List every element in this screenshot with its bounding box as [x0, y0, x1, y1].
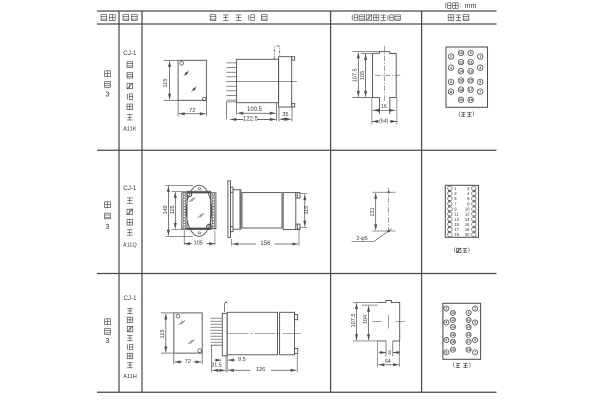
svg-text:7: 7	[479, 90, 481, 94]
svg-text:12: 12	[451, 318, 455, 322]
svg-text:(: (	[454, 248, 456, 254]
svg-text:3: 3	[474, 321, 476, 325]
svg-text:115: 115	[160, 329, 166, 338]
svg-text:4: 4	[446, 321, 448, 325]
svg-text:8: 8	[446, 351, 448, 355]
svg-text:2: 2	[450, 55, 452, 59]
svg-text::: :	[460, 3, 462, 9]
svg-text:(: (	[453, 363, 455, 369]
svg-text:64: 64	[385, 359, 391, 365]
svg-text:19: 19	[454, 232, 459, 237]
svg-text:15: 15	[469, 79, 473, 83]
svg-text:(: (	[458, 112, 460, 118]
svg-text:105: 105	[360, 71, 366, 80]
svg-text:131: 131	[370, 207, 376, 216]
svg-text:A11Q: A11Q	[123, 242, 138, 248]
svg-text:9.5: 9.5	[238, 357, 246, 363]
svg-text:5: 5	[474, 338, 476, 342]
svg-text:156: 156	[260, 241, 271, 247]
svg-text:11: 11	[469, 60, 473, 64]
svg-text:13: 13	[469, 69, 473, 73]
svg-text:17: 17	[469, 88, 473, 92]
svg-text:CJ-1: CJ-1	[123, 295, 137, 302]
svg-text:16: 16	[387, 350, 392, 355]
svg-text:3: 3	[106, 224, 110, 231]
svg-text:16: 16	[451, 333, 455, 337]
svg-text:6: 6	[450, 80, 452, 84]
svg-text:19: 19	[467, 348, 471, 352]
svg-text:12: 12	[459, 60, 463, 64]
svg-text:9: 9	[470, 51, 472, 55]
svg-text:18: 18	[459, 88, 463, 92]
svg-text:7: 7	[474, 351, 476, 355]
svg-text:A11H: A11H	[123, 374, 137, 380]
svg-text:9: 9	[468, 311, 470, 315]
svg-text:35: 35	[282, 112, 288, 118]
svg-text:107.5: 107.5	[353, 68, 359, 82]
svg-text:20: 20	[451, 348, 455, 352]
svg-text:mm: mm	[465, 3, 477, 10]
svg-text:19: 19	[469, 98, 473, 102]
svg-text:125: 125	[170, 205, 176, 214]
svg-text:10: 10	[459, 51, 463, 55]
svg-text:2-φ5: 2-φ5	[356, 236, 367, 242]
svg-text:122.5: 122.5	[243, 117, 259, 123]
svg-text:100.5: 100.5	[247, 107, 263, 113]
svg-text:16: 16	[381, 104, 387, 110]
svg-text:20: 20	[465, 232, 470, 237]
svg-text:105: 105	[193, 241, 203, 247]
svg-text:): )	[468, 248, 470, 254]
svg-text:149: 149	[163, 205, 169, 214]
svg-text:4: 4	[450, 66, 452, 70]
svg-text:5: 5	[479, 80, 481, 84]
svg-text:(64): (64)	[379, 118, 389, 124]
svg-text:11: 11	[467, 318, 471, 322]
svg-text:1: 1	[479, 55, 481, 59]
svg-text:126: 126	[256, 367, 266, 373]
svg-text:3: 3	[106, 338, 110, 345]
svg-text:CJ-1: CJ-1	[123, 185, 137, 192]
svg-text:2: 2	[446, 307, 448, 311]
svg-text:18: 18	[451, 340, 455, 344]
svg-text:72: 72	[185, 359, 191, 365]
svg-text:A11K: A11K	[123, 127, 137, 133]
svg-text:): )	[469, 363, 471, 369]
svg-text:17: 17	[467, 340, 471, 344]
svg-text:31.5: 31.5	[211, 363, 221, 369]
svg-text:3: 3	[106, 92, 110, 99]
svg-text:10: 10	[451, 311, 455, 315]
svg-text:6: 6	[446, 338, 448, 342]
svg-text:72: 72	[189, 108, 195, 114]
svg-text:104: 104	[363, 315, 369, 324]
svg-text:115: 115	[304, 206, 310, 215]
svg-text:1: 1	[474, 307, 476, 311]
svg-text:15: 15	[467, 333, 471, 337]
svg-text:14: 14	[459, 69, 463, 73]
svg-text:): )	[472, 112, 474, 118]
svg-text:16: 16	[459, 79, 463, 83]
svg-text:3: 3	[479, 66, 481, 70]
svg-text:14: 14	[451, 325, 455, 329]
svg-text:107.5: 107.5	[351, 314, 357, 328]
svg-text:115: 115	[163, 78, 169, 87]
svg-text:13: 13	[467, 325, 471, 329]
svg-text:8: 8	[450, 90, 452, 94]
svg-text:20: 20	[459, 98, 463, 102]
svg-text:CJ-1: CJ-1	[123, 50, 137, 57]
